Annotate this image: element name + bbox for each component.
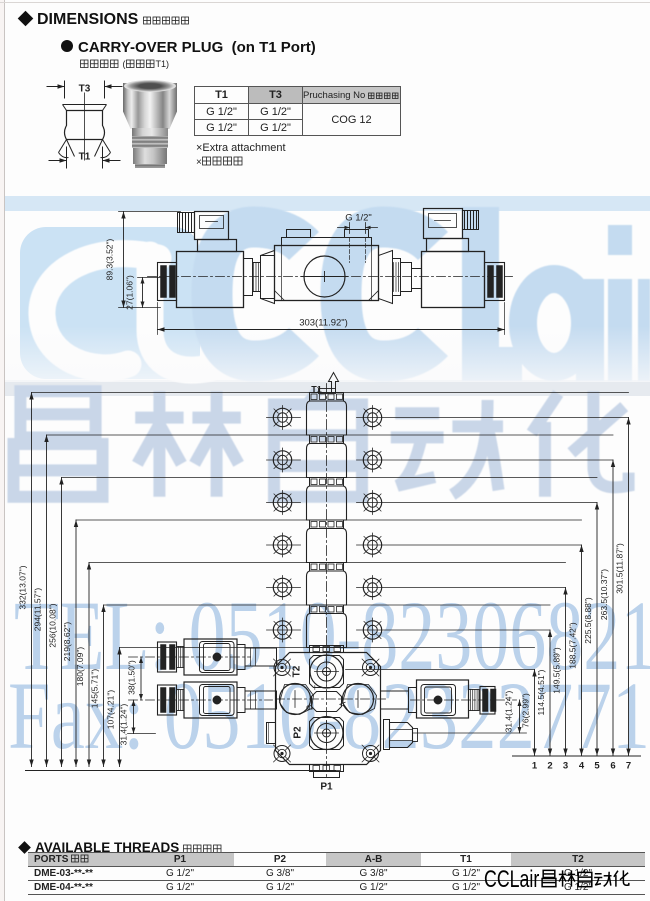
svg-text:4: 4 — [579, 761, 585, 772]
svg-text:303(11.92"): 303(11.92") — [299, 318, 348, 329]
svg-text:332(13.07"): 332(13.07") — [18, 565, 28, 609]
svg-text:180(7.09"): 180(7.09") — [75, 647, 85, 687]
svg-text:2: 2 — [547, 761, 552, 772]
svg-text:A: A — [339, 701, 348, 707]
svg-text:301.5(11.87"): 301.5(11.87") — [615, 543, 625, 594]
svg-text:149.5(5.89"): 149.5(5.89") — [552, 647, 562, 694]
svg-text:38(1.50"): 38(1.50") — [127, 660, 137, 695]
svg-text:145(5.71"): 145(5.71") — [90, 669, 100, 709]
svg-text:89.3(3.52"): 89.3(3.52") — [105, 238, 115, 280]
svg-text:263.5(10.37"): 263.5(10.37") — [599, 569, 609, 620]
svg-text:256(10.08"): 256(10.08") — [48, 603, 58, 647]
svg-text:76(2.99"): 76(2.99") — [521, 693, 531, 728]
svg-text:225.5(8.88"): 225.5(8.88") — [583, 597, 593, 644]
svg-text:31.4(1.24"): 31.4(1.24") — [119, 703, 129, 745]
svg-text:31.4(1.24"): 31.4(1.24") — [504, 690, 514, 732]
svg-text:T1: T1 — [79, 152, 91, 163]
svg-text:188.5(7.42"): 188.5(7.42") — [568, 622, 578, 669]
svg-text:T2: T2 — [292, 665, 303, 677]
svg-text:6: 6 — [610, 761, 615, 772]
svg-text:219(8.62"): 219(8.62") — [62, 622, 72, 662]
svg-text:P1: P1 — [320, 782, 333, 793]
svg-text:7: 7 — [626, 761, 631, 772]
svg-text:5: 5 — [594, 761, 600, 772]
svg-text:3: 3 — [563, 761, 568, 772]
svg-text:1: 1 — [532, 761, 538, 772]
svg-text:107(4.21"): 107(4.21") — [106, 690, 116, 730]
svg-text:27(1.06"): 27(1.06") — [125, 275, 135, 310]
svg-text:G 1/2": G 1/2" — [345, 213, 372, 224]
svg-text:114.5(4.51"): 114.5(4.51") — [536, 669, 546, 715]
svg-text:B: B — [306, 705, 315, 710]
svg-text:294(11.57"): 294(11.57") — [33, 588, 43, 632]
svg-text:P2: P2 — [293, 726, 304, 739]
svg-text:T: T — [314, 685, 323, 690]
